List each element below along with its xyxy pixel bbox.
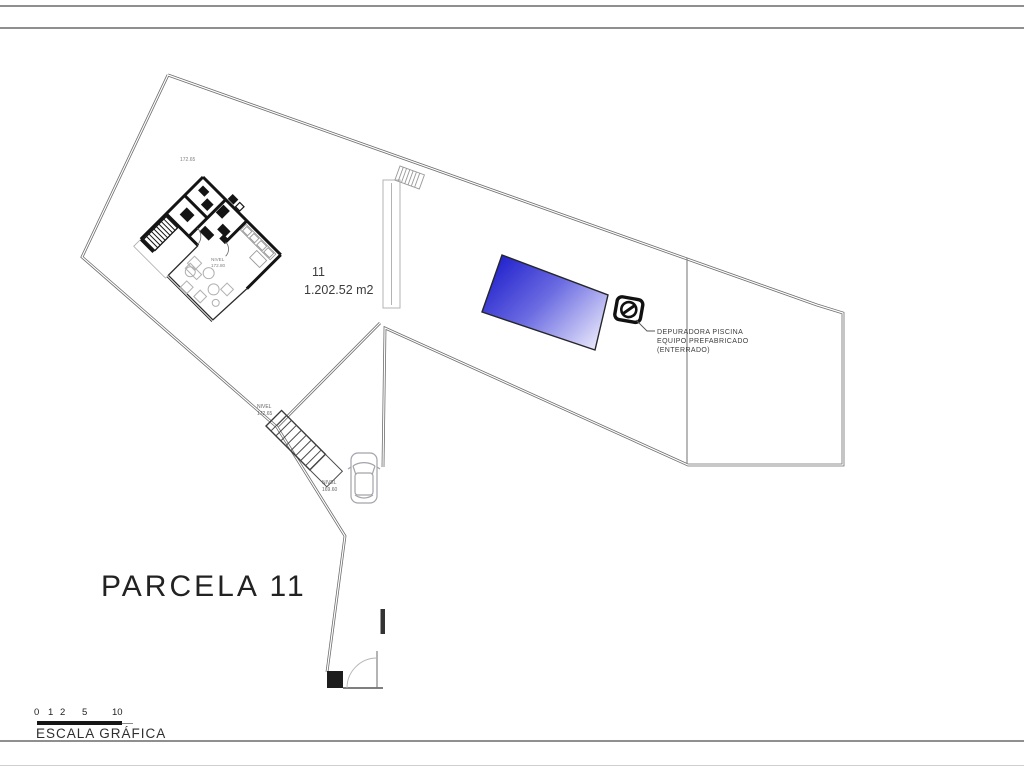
- house-walls: [141, 177, 281, 317]
- gate-pillar: [327, 671, 343, 688]
- parcel-number: 11: [312, 265, 325, 279]
- retaining-wall: [383, 180, 400, 308]
- driveway-stairs: [266, 410, 342, 486]
- pool-equipment-note: DEPURADORA PISCINA EQUIPO PREFABRICADO (…: [657, 329, 749, 354]
- driveway-level-line2: 169.60: [322, 487, 338, 493]
- level-label-garden: 172.65: [180, 157, 196, 163]
- scale-tick-10: 10: [112, 707, 123, 718]
- drawing-sheet: 172.65 NIVEL 172.80 11 1.202.52 m2 NIVEL…: [0, 0, 1024, 768]
- house-level-line2: 172.80: [211, 263, 225, 268]
- pool-equipment-icon: [614, 296, 644, 323]
- pool-equipment-note-line3: (ENTERRADO): [657, 347, 710, 354]
- scale-tick-2: 2: [60, 707, 65, 718]
- gate-post: [381, 609, 386, 634]
- entrance-gate: [327, 609, 385, 688]
- scale-tick-5: 5: [82, 707, 87, 718]
- scale-tick-0: 0: [34, 707, 39, 718]
- scale-tick-1: 1: [48, 707, 53, 718]
- scale-bar-extension: [122, 723, 133, 724]
- stairs-level-line2: 172.65: [257, 411, 273, 417]
- pool-equipment-note-line2: EQUIPO PREFABRICADO: [657, 338, 749, 345]
- house-fixtures: [177, 175, 254, 252]
- parcel-area: 1.202.52 m2: [304, 283, 374, 297]
- house-level-line1: NIVEL: [211, 257, 225, 262]
- pool-equipment-note-line1: DEPURADORA PISCINA: [657, 329, 743, 336]
- boundary-steps-hatch: [395, 166, 425, 189]
- house-floorplan: [134, 171, 287, 324]
- scale-bar-rule: [37, 721, 122, 725]
- parcel-title: PARCELA 11: [101, 570, 307, 604]
- door-swing-arc: [347, 658, 377, 688]
- stairs-level-line1: NIVEL: [257, 404, 272, 410]
- car-icon: [348, 453, 380, 503]
- driveway-level-line1: NIVEL: [322, 480, 337, 486]
- site-plan-drawing: 172.65 NIVEL 172.80 11 1.202.52 m2 NIVEL…: [0, 0, 1024, 768]
- swimming-pool: [482, 255, 608, 350]
- scale-caption: ESCALA GRÁFICA: [36, 726, 166, 741]
